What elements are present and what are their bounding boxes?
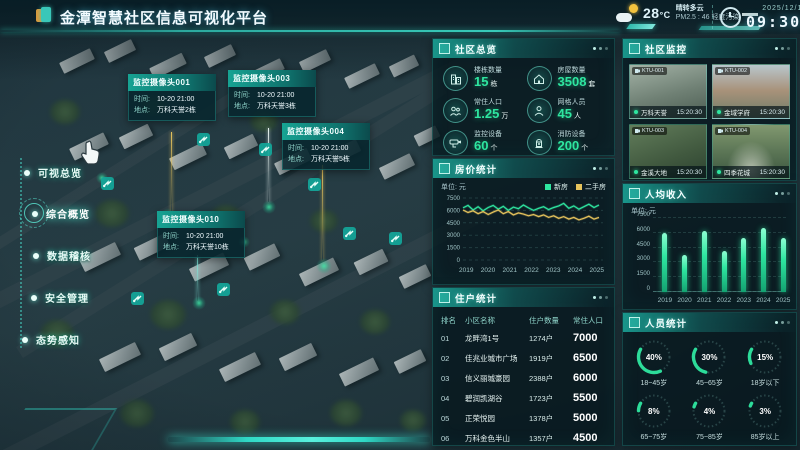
top-header: 金潭智慧社区信息可视化平台 28°C 晴转多云 PM2.5 : 46 轻度污染 …: [0, 0, 800, 34]
camera-timestamp: 15:20:30: [760, 109, 785, 116]
ring-age-label: 65~75岁: [640, 432, 667, 442]
income-bar: [722, 251, 727, 292]
sidebar-item-5[interactable]: 态势感知: [22, 332, 80, 347]
legend-item[interactable]: 二手房: [576, 182, 606, 192]
camera-icon: [635, 129, 640, 133]
panel-title: 房价统计: [455, 162, 497, 176]
camera-icon: [718, 129, 723, 133]
svg-text:6000: 6000: [447, 208, 461, 214]
housing-line-chart: 015003000450060007500: [433, 192, 614, 267]
ring-percentage: 15%: [746, 338, 784, 376]
app-logo-icon: [36, 7, 52, 25]
camera-feed[interactable]: KTU-001 万科天誉 15:20:30: [629, 64, 707, 119]
panel-icon: [439, 163, 450, 174]
age-ring-item: 3% 85岁以上: [738, 392, 792, 442]
sidebar-item-4[interactable]: 安全管理: [31, 290, 89, 305]
ring-age-label: 45~65岁: [696, 378, 723, 388]
panel-options-dots[interactable]: [775, 192, 790, 195]
svg-text:4500: 4500: [447, 221, 461, 227]
unit-label: 单位: 元: [441, 182, 466, 192]
legend-swatch-icon: [576, 184, 582, 190]
ring-percentage: 8%: [635, 392, 673, 430]
income-bar: [662, 233, 667, 292]
nav-dot-icon: [33, 253, 39, 259]
income-bar-chart: 0150030004500600075002019202020212022202…: [631, 218, 788, 304]
ring-age-label: 18~45岁: [640, 378, 667, 388]
ring-percentage: 30%: [690, 338, 728, 376]
temperature-value: 28°C: [643, 5, 671, 21]
panel-options-dots[interactable]: [775, 47, 790, 50]
residents-table: 排名小区名称住户数量常住人口01龙畔湾1号1274户700002佳兆业城市广场1…: [433, 307, 614, 450]
panel-header: 社区监控: [623, 39, 796, 58]
ring-percentage: 4%: [690, 392, 728, 430]
population-icon: [443, 98, 468, 123]
panel-header: 房价统计: [433, 159, 614, 178]
stat-item: 网格人员 45人: [527, 98, 605, 123]
panel-community-overview: 社区总览 楼栋数量 15栋 房屋数量 3508套 常住人口 1.25万 网格人员…: [432, 38, 615, 156]
camera-id-badge: KTU-001: [632, 67, 667, 75]
camera-timestamp: 15:20:30: [677, 169, 702, 176]
camera-id-badge: KTU-003: [632, 127, 667, 135]
svg-text:3000: 3000: [447, 233, 461, 239]
age-ring-item: 15% 18岁以下: [738, 338, 792, 388]
header-divider-line: [0, 30, 620, 32]
income-bar: [761, 228, 766, 292]
page-title: 金潭智慧社区信息可视化平台: [60, 7, 268, 28]
nav-item-label: 可视总览: [38, 165, 82, 180]
sidebar-item-3[interactable]: 数据稽核: [33, 248, 91, 263]
panel-icon: [629, 188, 640, 199]
age-ring-item: 40% 18~45岁: [627, 338, 681, 388]
live-dot: [717, 170, 721, 174]
camera-feed[interactable]: KTU-004 四季花城 15:20:30: [712, 124, 790, 179]
dashboard-root: 金潭智慧社区信息可视化平台 28°C 晴转多云 PM2.5 : 46 轻度污染 …: [0, 0, 800, 450]
camera-timestamp: 15:20:30: [677, 109, 702, 116]
panel-title: 人均收入: [645, 187, 687, 201]
income-bar: [741, 238, 746, 292]
nav-dot-icon: [32, 211, 38, 217]
header-vertical-divider: [712, 5, 713, 29]
datetime-widget: 2025/12/10 星期三 09:30:05: [720, 3, 800, 31]
panel-demographics: 人员统计 40% 18~45岁 30% 45~65岁 15% 18岁以下 8% …: [622, 312, 797, 446]
stat-item: 监控设备 60个: [443, 130, 521, 155]
panel-icon: [439, 292, 450, 303]
ring-age-label: 18岁以下: [751, 378, 780, 388]
svg-text:7500: 7500: [447, 196, 461, 202]
sidebar-item-1[interactable]: 可视总览: [24, 165, 82, 180]
camera-icon: [635, 69, 640, 73]
panel-header: 人员统计: [623, 313, 796, 332]
camera-icon: [718, 69, 723, 73]
table-row[interactable]: 06万科金色半山1357户4500: [441, 428, 606, 448]
date-text: 2025/12/10 星期三: [762, 3, 800, 13]
live-dot: [717, 110, 721, 114]
nav-item-label: 综合概览: [46, 206, 90, 221]
legend-item[interactable]: 新房: [545, 182, 568, 192]
camera-timestamp: 15:20:30: [760, 169, 785, 176]
panel-header: 住户统计: [433, 288, 614, 307]
camera-name: 金溪大地: [641, 167, 667, 177]
panel-title: 社区总览: [455, 42, 497, 56]
age-ring-item: 8% 65~75岁: [627, 392, 681, 442]
clock-icon: [720, 7, 741, 28]
income-bar: [702, 231, 707, 292]
panel-options-dots[interactable]: [593, 296, 608, 299]
panel-resident-stats: 住户统计 排名小区名称住户数量常住人口01龙畔湾1号1274户700002佳兆业…: [432, 287, 615, 446]
svg-text:0: 0: [457, 258, 461, 262]
stat-item: 房屋数量 3508套: [527, 66, 605, 91]
stat-item: 常住人口 1.25万: [443, 98, 521, 123]
camera-name: 万科天誉: [641, 107, 667, 117]
table-row[interactable]: 01龙畔湾1号1274户7000: [441, 328, 606, 348]
panel-header: 人均收入: [623, 184, 796, 203]
cctv-icon: [443, 130, 468, 155]
nav-item-label: 安全管理: [45, 290, 89, 305]
panel-options-dots[interactable]: [593, 167, 608, 170]
header-deco-slant: [626, 24, 656, 29]
live-dot: [634, 170, 638, 174]
camera-feed[interactable]: KTU-002 金域学府 15:20:30: [712, 64, 790, 119]
panel-housing-price: 房价统计 单位: 元 新房二手房 015003000450060007500 2…: [432, 158, 615, 285]
house-icon: [527, 66, 552, 91]
age-ring-item: 4% 75~85岁: [683, 392, 737, 442]
age-ring-item: 30% 45~65岁: [683, 338, 737, 388]
camera-feed[interactable]: KTU-003 金溪大地 15:20:30: [629, 124, 707, 179]
nav-dot-icon: [31, 295, 37, 301]
stat-item: 楼栋数量 15栋: [443, 66, 521, 91]
ring-percentage: 40%: [635, 338, 673, 376]
building-icon: [443, 66, 468, 91]
sun-cloud-icon: [616, 4, 638, 22]
table-header-row: 排名小区名称住户数量常住人口: [441, 312, 606, 328]
panel-icon: [629, 317, 640, 328]
stat-item: 消防设备 200个: [527, 130, 605, 155]
panel-per-capita-income: 人均收入 单位: 元 01500300045006000750020192020…: [622, 183, 797, 310]
camera-id-badge: KTU-002: [715, 67, 750, 75]
panel-title: 社区监控: [645, 42, 687, 56]
table-row[interactable]: 04碧润凯湖谷1723户5500: [441, 388, 606, 408]
legend-swatch-icon: [545, 184, 551, 190]
time-text: 09:30:05: [746, 13, 800, 31]
ring-age-label: 75~85岁: [696, 432, 723, 442]
camera-name: 金域学府: [724, 107, 750, 117]
svg-text:1500: 1500: [447, 246, 461, 252]
camera-id-badge: KTU-004: [715, 127, 750, 135]
income-bar: [682, 255, 687, 292]
ring-percentage: 3%: [746, 392, 784, 430]
ring-age-label: 85岁以上: [751, 432, 780, 442]
nav-dotted-line: [20, 158, 22, 348]
panel-icon: [629, 43, 640, 54]
line-chart-x-axis: 2019202020212022202320242025: [433, 267, 614, 274]
table-row[interactable]: 03信义丽城豪园2388户6000: [441, 368, 606, 388]
table-row[interactable]: 05正荣悦园1378户5000: [441, 408, 606, 428]
nav-dot-icon: [22, 337, 28, 343]
nav-item-label: 数据稽核: [47, 248, 91, 263]
camera-name: 四季花城: [724, 167, 750, 177]
panel-options-dots[interactable]: [775, 321, 790, 324]
panel-community-monitoring: 社区监控 KTU-001 万科天誉 15:20:30 KTU-002 金域学府 …: [622, 38, 797, 181]
panel-options-dots[interactable]: [593, 47, 608, 50]
panel-icon: [439, 43, 450, 54]
person-icon: [527, 98, 552, 123]
panel-title: 住户统计: [455, 291, 497, 305]
panel-title: 人员统计: [645, 316, 687, 330]
panel-header: 社区总览: [433, 39, 614, 58]
table-row[interactable]: 02佳兆业城市广场1919户6500: [441, 348, 606, 368]
income-bar: [781, 238, 786, 292]
hydrant-icon: [527, 130, 552, 155]
hand-cursor-icon: [80, 140, 102, 166]
live-dot: [634, 110, 638, 114]
nav-dot-icon: [24, 170, 30, 176]
sidebar-item-2[interactable]: 综合概览: [32, 206, 90, 221]
nav-item-label: 态势感知: [36, 332, 80, 347]
